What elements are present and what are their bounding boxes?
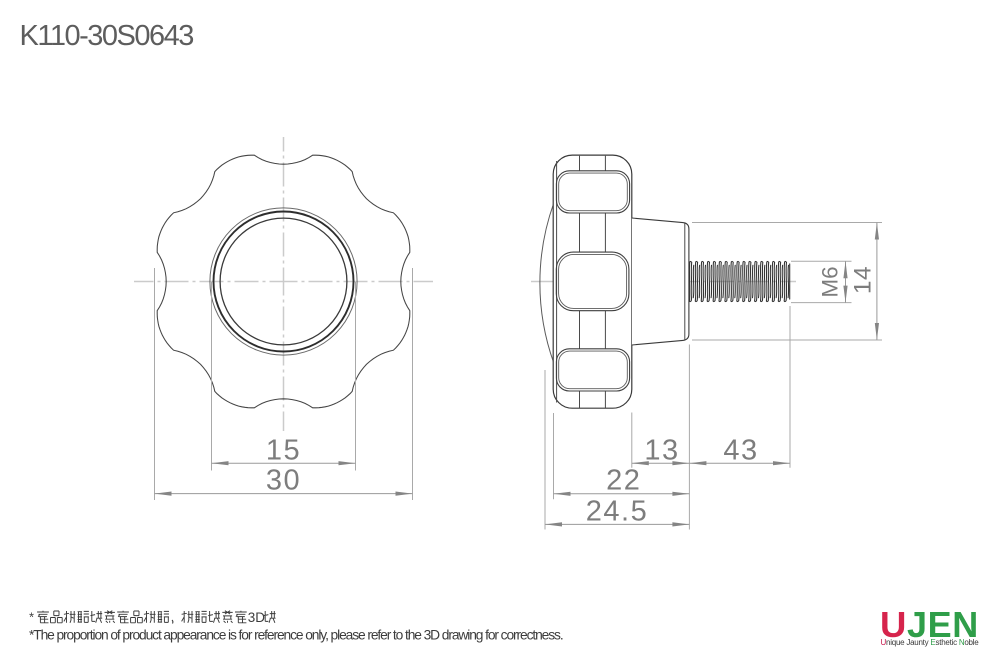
svg-text:13: 13 <box>644 435 679 467</box>
svg-text:M6: M6 <box>818 266 843 297</box>
svg-text:K110-30S0643: K110-30S0643 <box>20 20 194 52</box>
svg-text:30: 30 <box>266 465 301 497</box>
svg-text:14: 14 <box>850 266 877 294</box>
svg-text:*: * <box>29 610 34 625</box>
svg-text:15: 15 <box>266 435 301 467</box>
svg-text:43: 43 <box>723 435 758 467</box>
svg-text:24.5: 24.5 <box>586 496 648 528</box>
svg-text:3D: 3D <box>248 610 266 625</box>
svg-text:22: 22 <box>606 465 641 497</box>
svg-text:*The proportion of product app: *The proportion of product appearance is… <box>29 627 563 642</box>
svg-text:Unique Jaunty Esthetic Noble: Unique Jaunty Esthetic Noble <box>881 638 980 647</box>
